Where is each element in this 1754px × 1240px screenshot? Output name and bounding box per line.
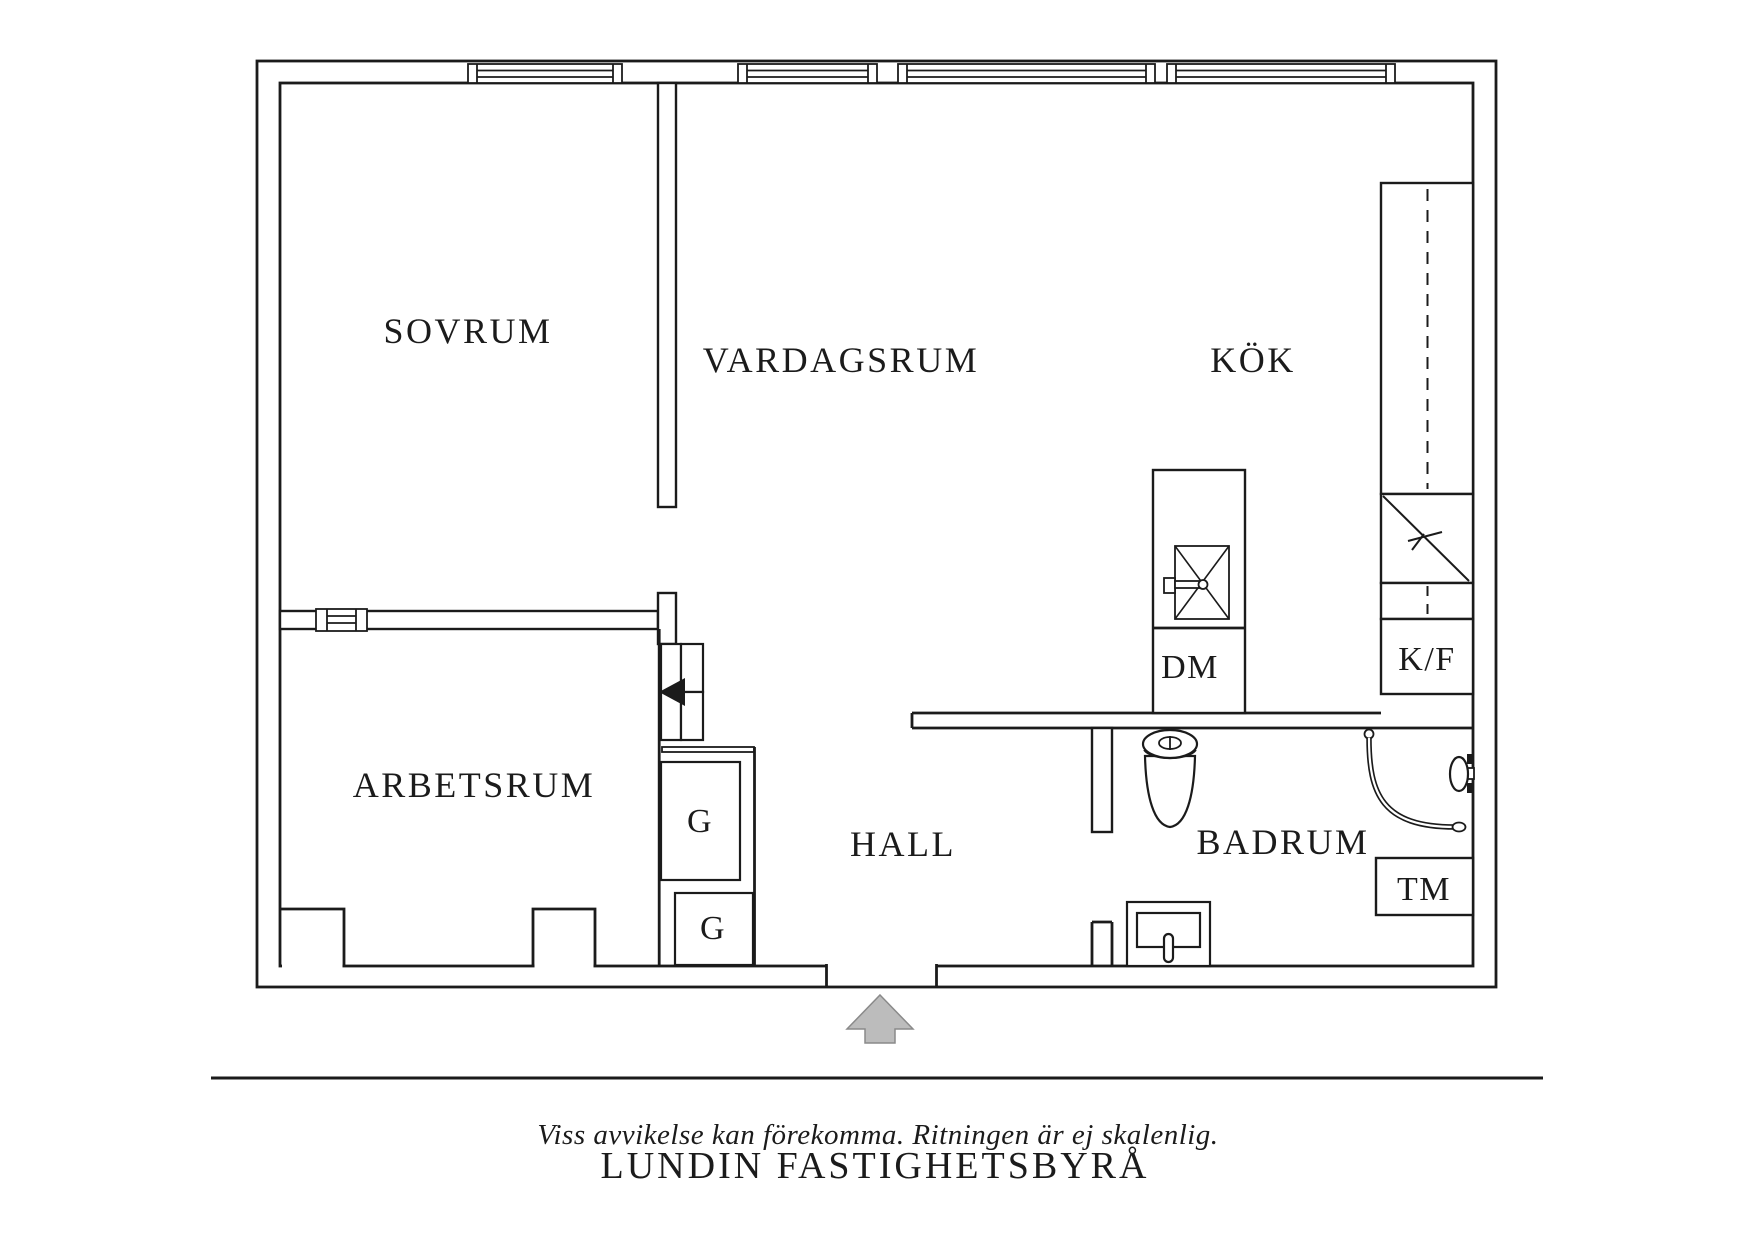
room-label-sovrum: SOVRUM bbox=[383, 311, 552, 351]
window-icon bbox=[898, 64, 1155, 83]
stove-icon bbox=[1381, 494, 1473, 583]
wall-mask-mid bbox=[535, 959, 594, 972]
washing-machine-label: TM bbox=[1397, 871, 1451, 908]
footer-brand: LUNDIN FASTIGHETSBYRÅ bbox=[601, 1145, 1150, 1187]
entrance-gap-mask bbox=[827, 959, 936, 972]
interior-window-icon bbox=[316, 609, 367, 631]
washing-machine-icon: TM bbox=[1376, 858, 1473, 915]
wall-mask-left bbox=[282, 959, 343, 972]
fridge-freezer-icon: K/F bbox=[1381, 619, 1473, 694]
floor-plan-drawing: G G DM K/F bbox=[0, 0, 1754, 1240]
window-icon bbox=[468, 64, 622, 83]
floor-plan-page: G G DM K/F bbox=[0, 0, 1754, 1240]
wall-pocket bbox=[662, 747, 754, 752]
wardrobes: G G bbox=[661, 762, 753, 965]
window-icon bbox=[738, 64, 877, 83]
shower-handle-icon bbox=[1450, 757, 1468, 791]
wall-sovrum-vardagsrum bbox=[658, 83, 676, 507]
kitchen-island: DM bbox=[1153, 470, 1245, 713]
room-label-badrum: BADRUM bbox=[1196, 822, 1369, 862]
wall-piece-doorway bbox=[658, 593, 676, 644]
room-label-hall: HALL bbox=[850, 824, 956, 864]
page-background bbox=[0, 0, 1754, 1240]
wardrobe-1-label: G bbox=[687, 803, 713, 840]
room-label-arbetsrum: ARBETSRUM bbox=[353, 765, 596, 805]
sliding-door-icon bbox=[659, 644, 703, 740]
wardrobe-2-label: G bbox=[700, 910, 726, 947]
fridge-freezer-label: K/F bbox=[1398, 641, 1455, 678]
room-label-kok: KÖK bbox=[1210, 340, 1296, 380]
shower-bracket-icon bbox=[1467, 783, 1474, 793]
kitchen-counter: K/F bbox=[1381, 183, 1473, 694]
dishwasher-label: DM bbox=[1161, 649, 1219, 686]
wall-badrum-west-upper bbox=[1092, 728, 1112, 832]
window-icon bbox=[1167, 64, 1395, 83]
room-label-vardagsrum: VARDAGSRUM bbox=[703, 340, 979, 380]
shower-bracket-icon bbox=[1467, 754, 1474, 764]
washbasin-icon bbox=[1127, 902, 1210, 966]
windows bbox=[468, 64, 1395, 83]
